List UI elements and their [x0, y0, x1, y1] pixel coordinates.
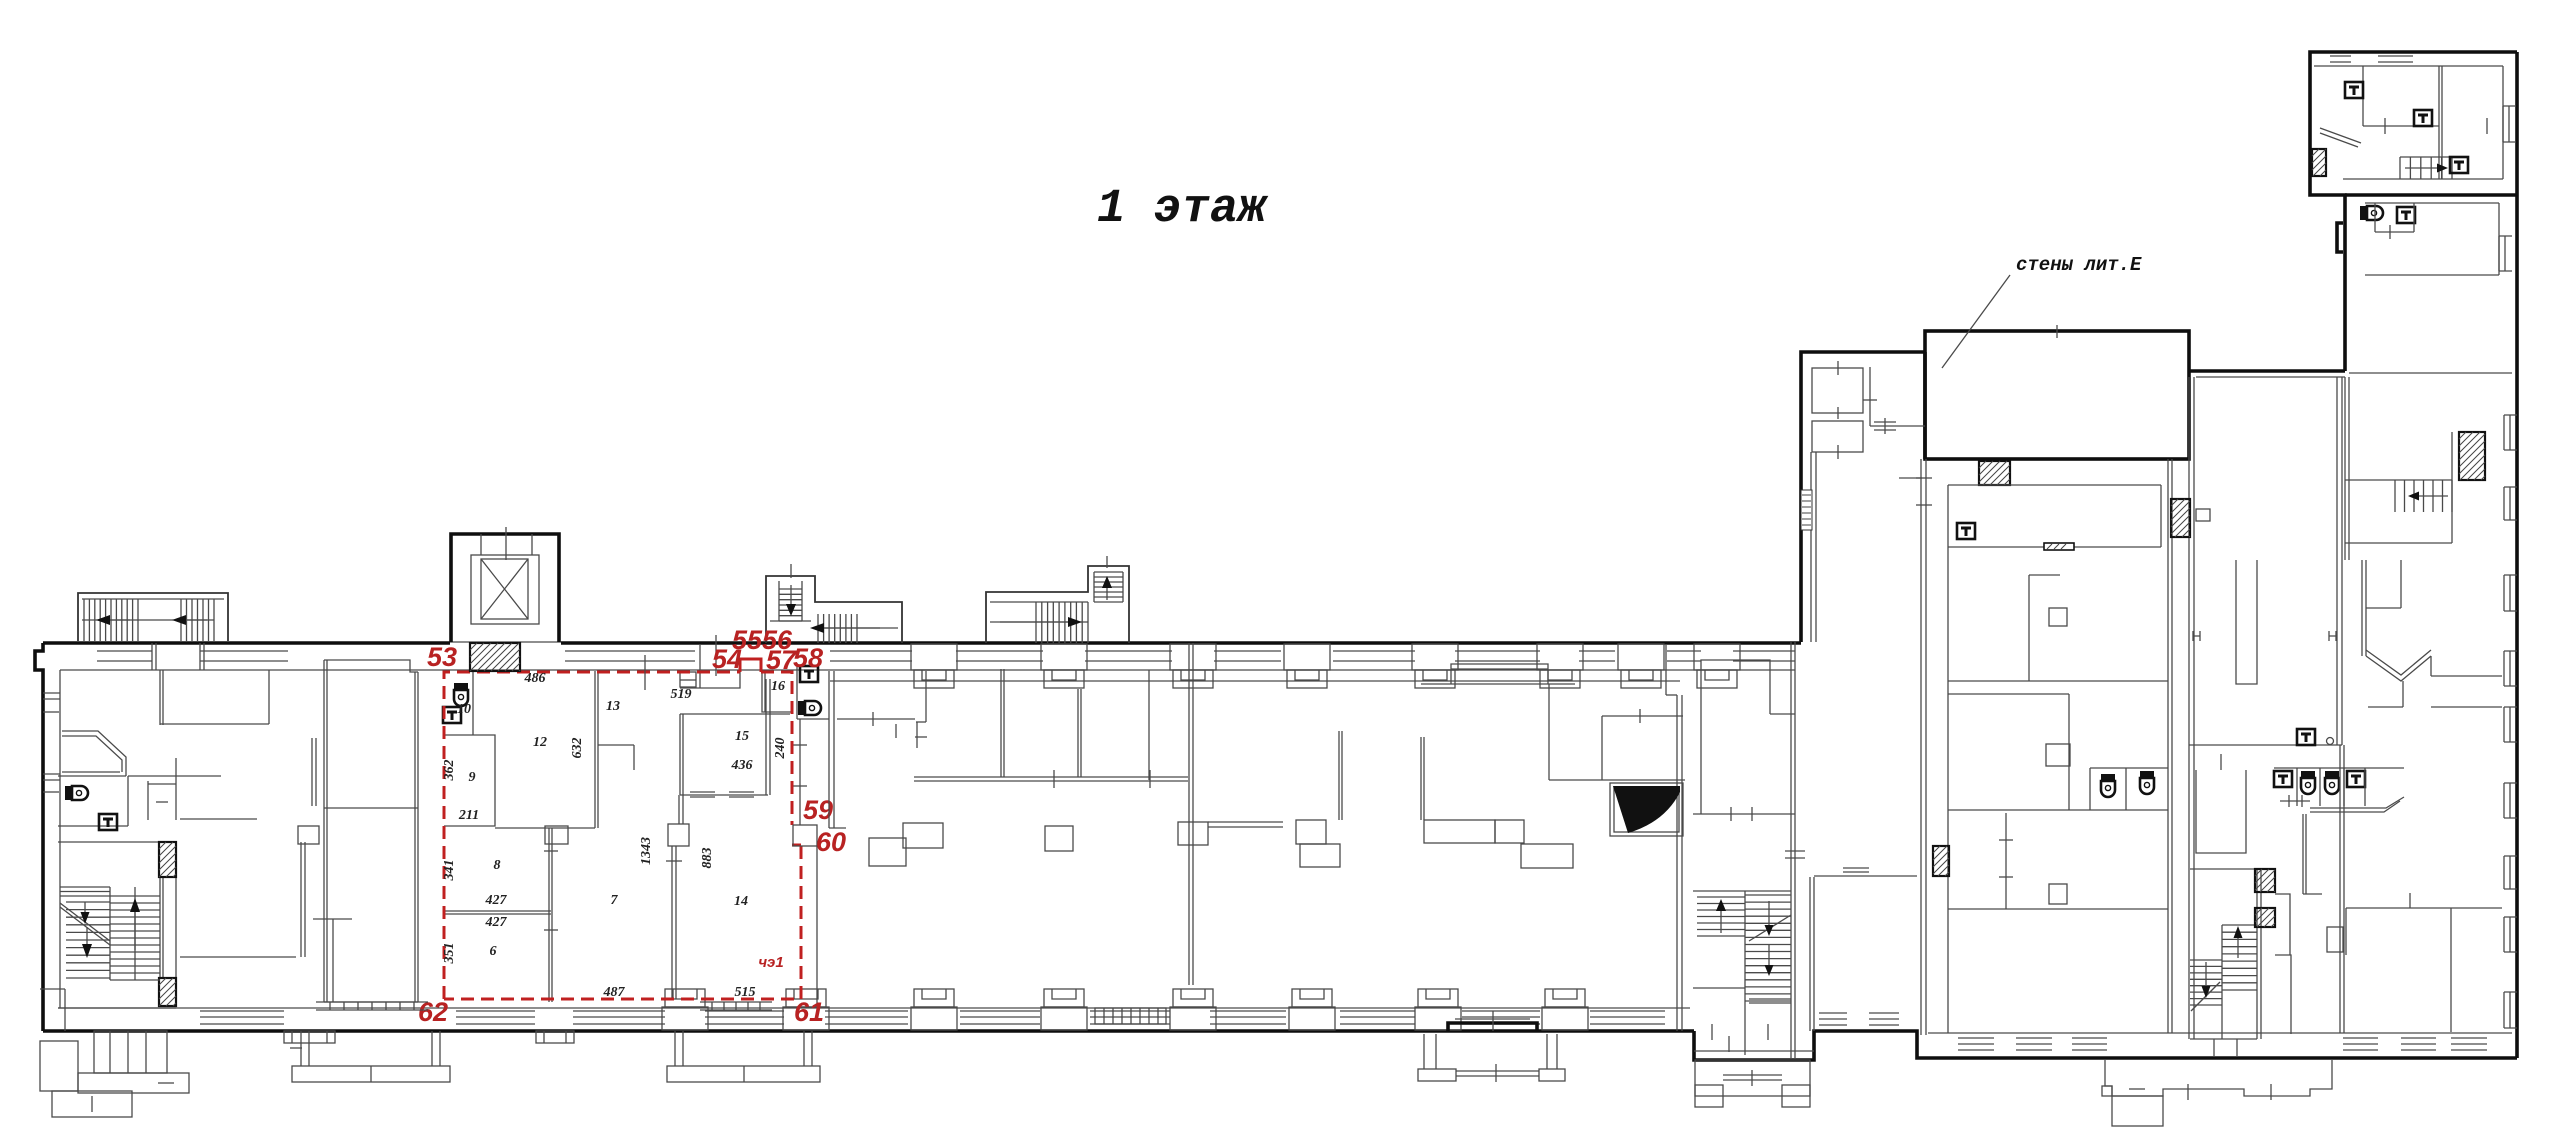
svg-text:10: 10	[457, 702, 471, 717]
svg-text:351: 351	[442, 943, 457, 965]
svg-text:240: 240	[773, 738, 788, 760]
svg-text:60: 60	[816, 827, 846, 857]
svg-text:чэ1: чэ1	[758, 954, 783, 971]
svg-text:427: 427	[485, 893, 508, 908]
svg-text:362: 362	[442, 760, 457, 782]
svg-text:436: 436	[731, 758, 753, 773]
svg-text:13: 13	[606, 699, 620, 714]
svg-text:1 этаж: 1 этаж	[1097, 183, 1269, 236]
svg-text:486: 486	[524, 671, 546, 686]
svg-text:632: 632	[570, 738, 585, 759]
svg-text:1343: 1343	[639, 837, 654, 865]
svg-text:61: 61	[794, 997, 824, 1027]
svg-text:6: 6	[490, 944, 497, 959]
svg-text:8: 8	[494, 858, 501, 873]
svg-text:487: 487	[603, 985, 626, 1000]
svg-text:211: 211	[458, 808, 479, 823]
svg-text:14: 14	[734, 894, 748, 909]
svg-text:53: 53	[427, 642, 457, 672]
svg-text:9: 9	[469, 770, 476, 785]
svg-text:519: 519	[671, 687, 692, 702]
svg-text:515: 515	[735, 985, 756, 1000]
svg-text:стены лит.Е: стены лит.Е	[2016, 254, 2142, 276]
svg-text:12: 12	[533, 735, 547, 750]
svg-text:341: 341	[442, 860, 457, 882]
svg-text:883: 883	[700, 848, 715, 869]
svg-text:16: 16	[771, 679, 785, 694]
svg-text:427: 427	[485, 915, 508, 930]
svg-text:15: 15	[735, 729, 749, 744]
svg-text:58: 58	[793, 643, 823, 673]
svg-text:7: 7	[611, 893, 619, 908]
